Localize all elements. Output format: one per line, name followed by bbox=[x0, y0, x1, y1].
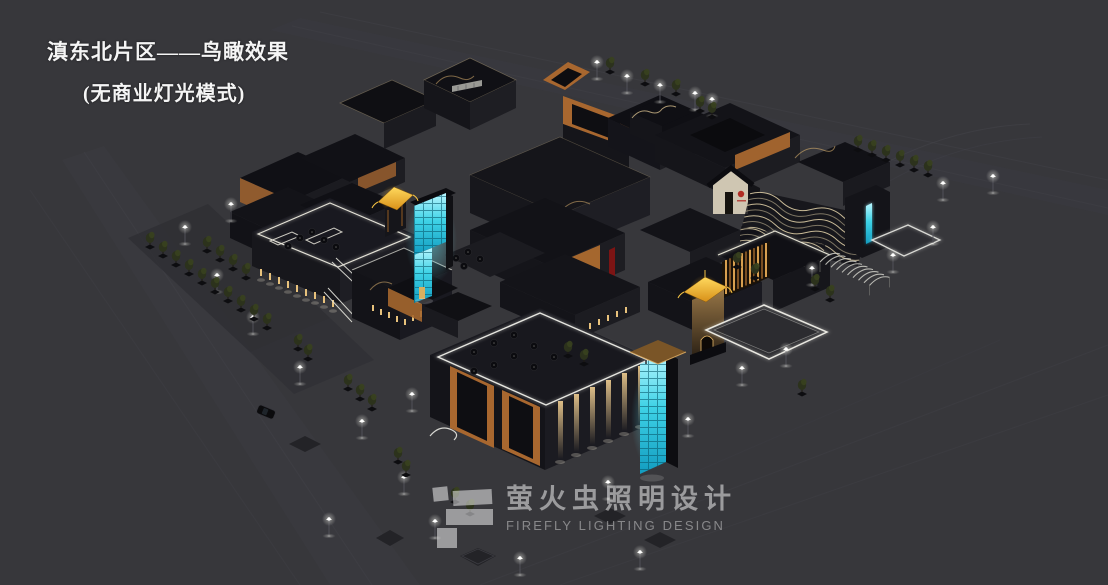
grand-building-south bbox=[430, 308, 655, 470]
title-line-2: (无商业灯光模式) bbox=[47, 77, 289, 106]
view-title: 滇东北片区——鸟瞰效果 (无商业灯光模式) bbox=[47, 36, 289, 106]
lit-entrance bbox=[419, 287, 425, 299]
glass-curtain-wall bbox=[640, 353, 666, 474]
title-line-1: 滇东北片区——鸟瞰效果 bbox=[47, 36, 289, 66]
red-sign-logo bbox=[738, 191, 744, 197]
night-aerial-rendering: 滇东北片区——鸟瞰效果 (无商业灯光模式) 萤火虫照明设计 FIREFLY LI… bbox=[0, 0, 1108, 585]
